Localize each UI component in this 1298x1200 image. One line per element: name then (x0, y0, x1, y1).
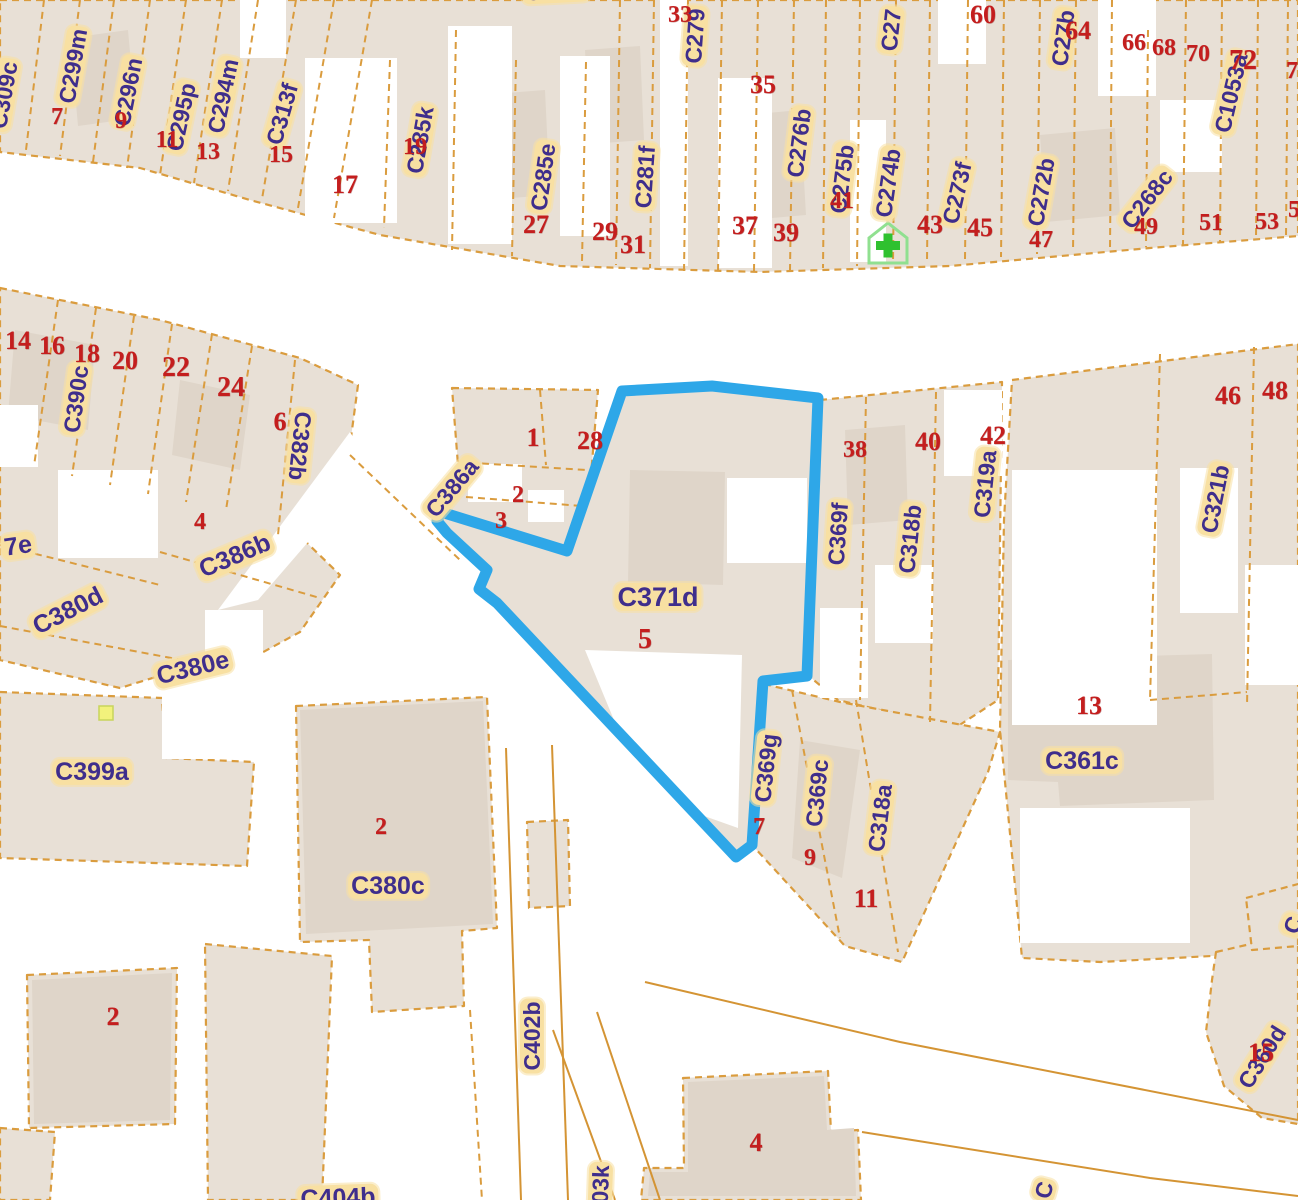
parcel-label[interactable]: 7e (0, 531, 37, 562)
parcel-label[interactable]: C369f (824, 499, 853, 569)
cadastral-map-canvas[interactable]: C309cC299mC296nC295pC294mC313fC286fC285k… (0, 0, 1298, 1200)
parcel-label[interactable]: C371d (614, 583, 701, 611)
yellow-square-marker (99, 706, 113, 720)
parcel-label[interactable]: C403k (587, 1162, 614, 1200)
parcel-label[interactable]: C281f (631, 142, 660, 212)
parcel-label[interactable]: C27 (876, 5, 905, 55)
parcel-label[interactable]: C404b (297, 1183, 379, 1200)
parcel-label[interactable]: C399a (52, 759, 132, 785)
parcel-label[interactable]: C279 (681, 5, 709, 68)
parcel-label[interactable]: C361c (1042, 748, 1122, 774)
parcel-label[interactable]: C402b (520, 998, 544, 1073)
parcel-label[interactable]: C380c (348, 873, 428, 899)
